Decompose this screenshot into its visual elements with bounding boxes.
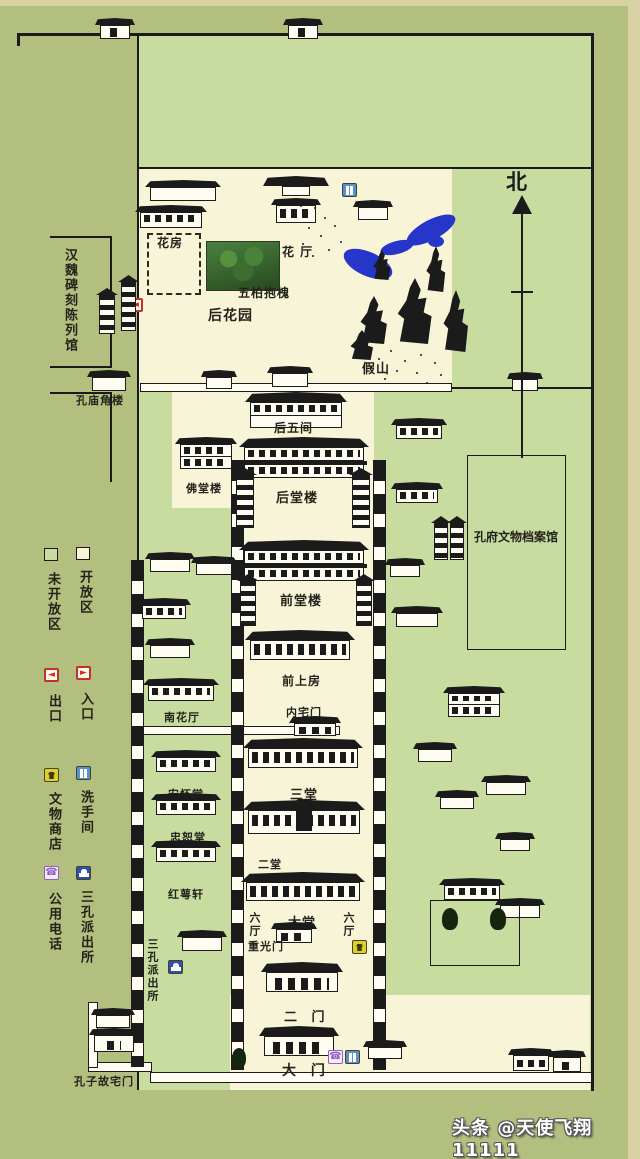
east-corridor (373, 460, 386, 1070)
qiantanglou-building (244, 540, 364, 581)
legend-open-label: 开放区 (75, 570, 94, 615)
houtanglou-building (244, 437, 364, 478)
legend-open-swatch (76, 547, 90, 560)
legend-shop-label: 文物商店 (44, 792, 63, 852)
hongexuan-label: 红萼轩 (168, 886, 204, 902)
police-station-label: 三孔派出所 (144, 938, 160, 1003)
north-wall-end (17, 33, 20, 46)
nanhuating-label: 南花厅 (164, 709, 200, 725)
zhongshutang-building (156, 793, 216, 815)
tower-icon (121, 281, 136, 331)
archives-outline (467, 455, 566, 650)
hanwei-wall-top (50, 236, 112, 238)
tower-icon (236, 474, 254, 528)
south-wall (150, 1072, 592, 1083)
building-icon (142, 598, 186, 619)
hongexuan-building (156, 840, 216, 862)
west-corridor (231, 460, 244, 1070)
kong-mansion-map: 花房 花 厅 五柏抱槐 后花园 假山 ◄ 汉魏碑刻陈列馆 孔庙角楼 后五间 佛堂… (0, 0, 640, 1159)
building-icon (150, 180, 216, 201)
legend-restroom-icon (76, 766, 91, 780)
north-arrow-icon (512, 195, 532, 214)
building-icon (140, 205, 202, 228)
building-icon (448, 686, 500, 717)
qiantanglou-label: 前堂楼 (280, 590, 322, 609)
legend-closed-swatch (44, 548, 58, 561)
east-wall (591, 33, 594, 1091)
liuting-right-label: 六厅 (340, 912, 356, 938)
gate-icon (272, 366, 308, 387)
datang-building (246, 872, 360, 901)
north-arrow-tick (511, 291, 533, 293)
tower-icon (99, 294, 115, 334)
building-icon (440, 790, 474, 809)
shop-icon (352, 940, 367, 954)
building-icon (390, 558, 420, 577)
north-arrow-shaft (521, 213, 523, 458)
legend-exit-icon: ◄ (44, 668, 59, 682)
tower-icon (240, 580, 256, 626)
tower-icon (450, 522, 464, 560)
houtanglou-label: 后堂楼 (276, 487, 318, 506)
building-icon (358, 200, 388, 220)
building-icon (396, 482, 438, 503)
building-icon (368, 1040, 402, 1059)
building-icon (444, 878, 500, 900)
speckle-texture (360, 348, 362, 350)
neizhaimen-gate (294, 716, 336, 736)
fotanglou-label: 佛堂楼 (186, 480, 222, 496)
building-icon (396, 418, 442, 439)
building-icon (486, 775, 526, 795)
qianshangfang-label: 前上房 (282, 672, 321, 689)
restroom-icon (345, 1050, 360, 1064)
top-border (0, 0, 640, 6)
gate-icon (206, 370, 232, 389)
gate-icon (288, 18, 318, 39)
gate-icon (100, 18, 130, 39)
archives-label: 孔府文物档案馆 (470, 528, 562, 545)
corner-tower-building (92, 370, 126, 391)
legend-entrance-icon: ► (76, 666, 91, 680)
flower-house-label: 花房 (157, 234, 183, 251)
legend-police-label: 三孔派出所 (76, 890, 95, 965)
legend-exit-label: 出口 (44, 694, 63, 724)
building-icon (513, 1048, 549, 1071)
fotanglou-building (180, 437, 232, 469)
qianshangfang-building (250, 630, 350, 660)
legend-shop-icon (44, 768, 59, 782)
guzhaimen-label: 孔子故宅门 (74, 1073, 134, 1089)
police-icon (168, 960, 183, 974)
ertang-label: 二堂 (258, 856, 282, 872)
watermark: 头条 @天使飞翔11111 (452, 1114, 640, 1159)
tree-icon (442, 908, 458, 930)
legend-phone-icon: ☎ (44, 866, 59, 880)
legend-entrance-label: 入口 (76, 692, 95, 722)
five-cypress-label: 五柏抱槐 (238, 284, 290, 301)
building-icon (396, 606, 438, 627)
right-border (628, 0, 640, 1159)
restroom-icon (342, 183, 357, 197)
speckle-texture (300, 205, 302, 207)
flower-hall-label: 花 厅 (282, 243, 313, 260)
building-icon (418, 742, 452, 762)
phone-icon: ☎ (328, 1050, 343, 1064)
pond (428, 236, 444, 247)
liuting-left-label: 六厅 (246, 912, 262, 938)
tower-icon (356, 580, 372, 626)
flower-hall-building-lower (276, 198, 316, 223)
damen-gate (264, 1026, 334, 1056)
building-icon (96, 1008, 130, 1028)
legend-phone-label: 公用电话 (44, 892, 63, 952)
nanhuating-building (148, 678, 214, 701)
hanwei-wall-bottom (50, 366, 112, 368)
legend-closed-label: 未开放区 (43, 572, 62, 632)
legend-restroom-label: 洗手间 (76, 790, 95, 835)
tree-icon (232, 1048, 246, 1068)
building-icon (196, 556, 232, 575)
guzhaimen-gate (94, 1028, 134, 1052)
gate-icon (553, 1050, 581, 1072)
houwujian-label: 后五间 (274, 419, 313, 436)
ertang-building (248, 800, 360, 834)
anhuaitang-building (156, 750, 216, 772)
north-label: 北 (506, 166, 527, 196)
chongguangmen-label: 重光门 (248, 938, 284, 954)
tower-icon (352, 474, 370, 528)
building-icon (182, 930, 222, 951)
ermen-label: 二 门 (284, 1006, 330, 1025)
santang-building (248, 738, 358, 768)
corner-tower-label: 孔庙角楼 (76, 392, 124, 408)
rockery-label: 假山 (362, 358, 390, 377)
courtyard-wall (430, 900, 520, 966)
hanwei-hall-label: 汉魏碑刻陈列馆 (60, 248, 79, 353)
flower-hall-building (268, 176, 324, 196)
damen-label: 大 门 (282, 1060, 330, 1080)
gate-icon (512, 372, 538, 391)
legend-police-icon (76, 866, 91, 880)
far-west-corridor (131, 560, 144, 1067)
tower-icon (434, 522, 448, 560)
back-garden-label: 后花园 (208, 305, 253, 325)
tree-icon (490, 908, 506, 930)
ermen-gate (266, 962, 338, 992)
building-icon (500, 832, 530, 851)
building-icon (150, 638, 190, 658)
building-icon (150, 552, 190, 572)
